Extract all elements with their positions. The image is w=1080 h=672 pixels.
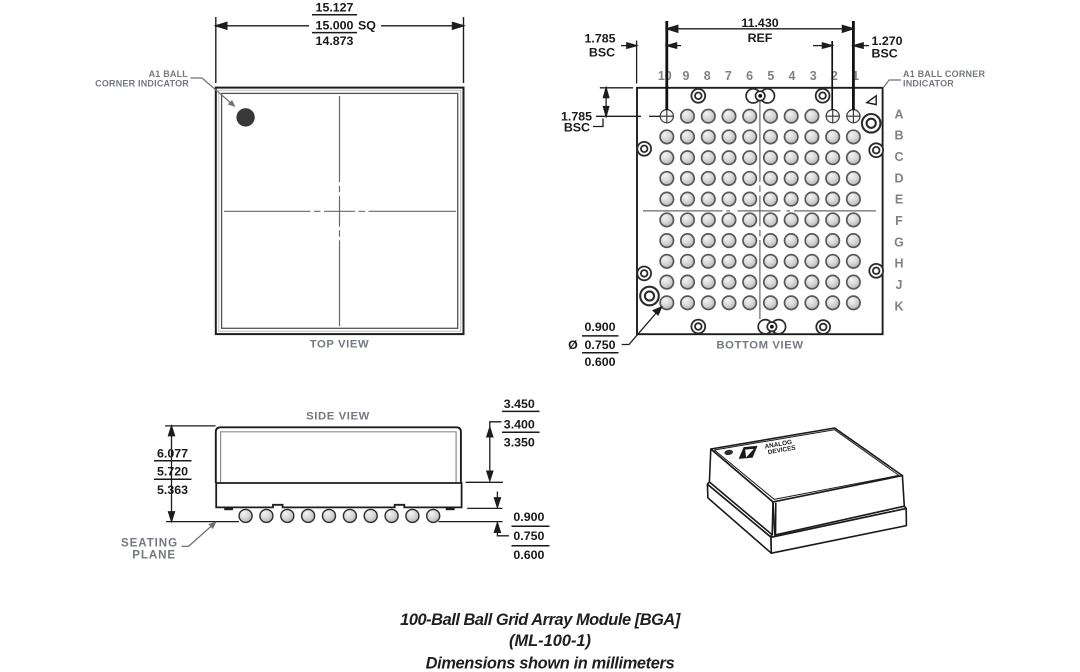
svg-text:REF: REF [748,31,773,45]
svg-text:PLANE: PLANE [132,549,176,562]
svg-text:SIDE VIEW: SIDE VIEW [306,411,370,423]
svg-text:3.350: 3.350 [504,435,535,449]
svg-text:(ML-100-1): (ML-100-1) [509,632,591,650]
svg-text:A1 BALL: A1 BALL [149,69,189,79]
svg-text:3.450: 3.450 [504,397,535,411]
svg-text:6.077: 6.077 [157,446,188,460]
svg-text:0.900: 0.900 [513,510,544,524]
svg-text:A: A [894,107,903,121]
svg-text:E: E [895,193,903,207]
svg-text:INDICATOR: INDICATOR [903,79,954,89]
svg-text:8: 8 [704,69,711,83]
svg-text:15.127: 15.127 [316,1,354,15]
svg-text:11.430: 11.430 [741,16,778,30]
svg-text:5.720: 5.720 [157,465,188,479]
svg-text:J: J [896,278,903,292]
svg-text:BSC: BSC [564,121,590,135]
svg-text:4: 4 [789,69,796,83]
svg-text:SQ: SQ [358,19,376,33]
svg-text:100-Ball Ball Grid Array Modul: 100-Ball Ball Grid Array Module [BGA] [400,611,681,629]
svg-text:0.600: 0.600 [513,548,544,562]
svg-text:15.000: 15.000 [316,19,354,33]
svg-text:BSC: BSC [872,47,898,61]
svg-text:6: 6 [746,69,753,83]
svg-text:9: 9 [683,69,690,83]
svg-text:CORNER INDICATOR: CORNER INDICATOR [95,78,189,88]
svg-text:K: K [894,299,903,313]
svg-text:7: 7 [725,69,732,83]
svg-text:0.750: 0.750 [584,338,615,352]
svg-text:10: 10 [658,69,672,83]
svg-text:G: G [894,235,904,249]
svg-text:H: H [894,257,903,271]
svg-text:B: B [894,129,903,143]
svg-text:14.873: 14.873 [316,34,354,48]
svg-text:0.750: 0.750 [513,529,544,543]
svg-text:D: D [894,171,903,185]
svg-text:5: 5 [767,69,774,83]
svg-text:C: C [894,150,903,164]
svg-text:3.400: 3.400 [504,418,535,432]
svg-text:A1 BALL CORNER: A1 BALL CORNER [903,69,985,79]
svg-text:0.600: 0.600 [584,355,615,369]
svg-text:BSC: BSC [589,45,615,59]
svg-text:0.900: 0.900 [584,320,615,334]
svg-text:Dimensions shown in millimeter: Dimensions shown in millimeters [426,655,675,672]
svg-text:5.363: 5.363 [157,483,188,497]
svg-text:BOTTOM VIEW: BOTTOM VIEW [716,340,803,352]
svg-text:TOP VIEW: TOP VIEW [310,339,370,351]
svg-text:3: 3 [810,69,817,83]
svg-text:1.785: 1.785 [584,32,615,46]
svg-text:F: F [895,214,903,228]
svg-text:Ø: Ø [568,338,578,352]
